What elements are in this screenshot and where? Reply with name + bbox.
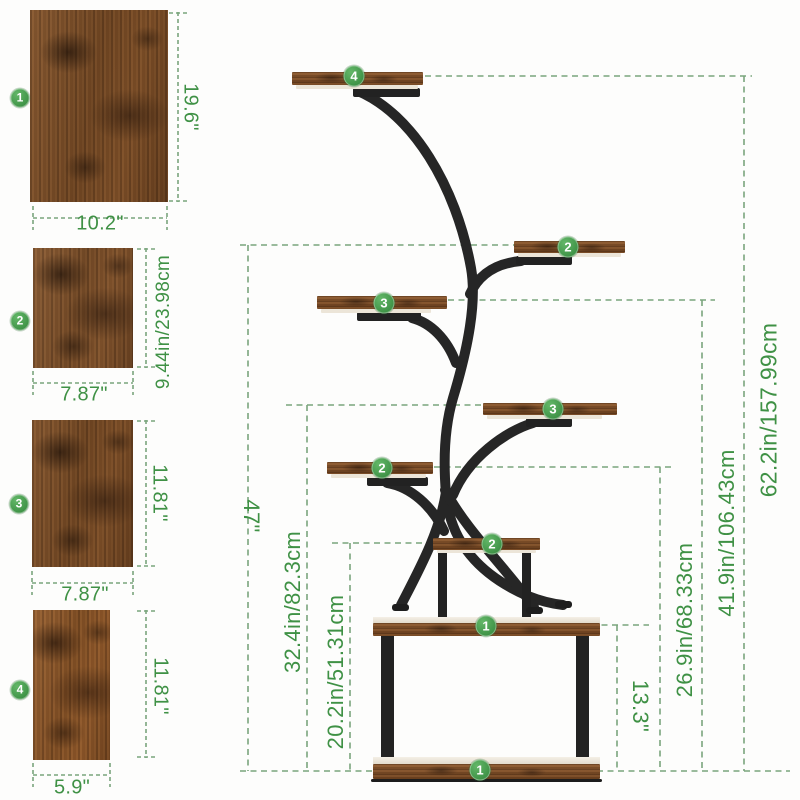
- arm-tier3-left: [412, 318, 456, 363]
- shelf-size-badge: 3: [374, 293, 395, 314]
- dim-20in: 20.2in/51.31cm: [323, 595, 349, 750]
- shelf2l-bracket: [367, 477, 428, 486]
- shelf2r-bracket: [516, 256, 572, 265]
- dim-26in: 26.9in/68.33cm: [672, 543, 698, 698]
- shelf3r-bracket: [526, 418, 572, 427]
- tube-foot: [526, 607, 543, 614]
- panel-number-badge: 3: [10, 495, 29, 514]
- panel1-height-label: 19.6": [179, 83, 202, 131]
- panel3-height-label: 11.81": [148, 464, 171, 521]
- shelf-size-badge: 2: [482, 534, 503, 555]
- panel2-width-label: 7.87": [60, 384, 108, 407]
- arm-tier2-right: [470, 261, 521, 294]
- shelf3l-bracket: [357, 312, 421, 321]
- small-shelf-leg: [438, 550, 447, 620]
- shelf-size-badge: 3: [543, 399, 564, 420]
- shelf-size-badge: 2: [558, 237, 579, 258]
- tube-foot: [555, 601, 572, 608]
- base-leg-right: [576, 633, 589, 762]
- panel4-width-label: 5.9": [54, 777, 90, 800]
- trunk-tube: [358, 91, 563, 605]
- panel-number-badge: 4: [11, 681, 30, 700]
- dim-47in: 47": [238, 499, 264, 532]
- panel-number-badge: 1: [11, 89, 30, 108]
- base-leg-left: [381, 633, 394, 762]
- dim-32in: 32.4in/82.3cm: [280, 531, 306, 673]
- arm-tier3-right: [453, 423, 533, 495]
- panel3-width-label: 7.87": [61, 584, 109, 607]
- shelf-size-badge: 1: [476, 616, 497, 637]
- panel1-width-label: 10.2": [76, 213, 124, 236]
- dim-41in: 41.9in/106.43cm: [714, 449, 740, 616]
- shelf4-bracket: [353, 88, 420, 97]
- panel4-height-label: 11.81": [149, 657, 172, 714]
- shelf-size-badge: 4: [344, 66, 365, 87]
- dim-total-height: 62.2in/157.99cm: [756, 323, 783, 498]
- shelf-bottom-shadow: [371, 779, 602, 782]
- dim-13in: 13.3": [627, 680, 653, 732]
- tube-foot: [392, 604, 409, 611]
- panel-number-badge: 2: [11, 312, 30, 331]
- product-dimension-diagram: 1 2 3 4 19.6" 10.2" 9.44in/23.98cm 7.87"…: [0, 0, 800, 800]
- shelf-size-badge: 2: [372, 458, 393, 479]
- panel2-height-label: 9.44in/23.98cm: [153, 255, 175, 389]
- shelf-size-badge: 1: [470, 760, 491, 781]
